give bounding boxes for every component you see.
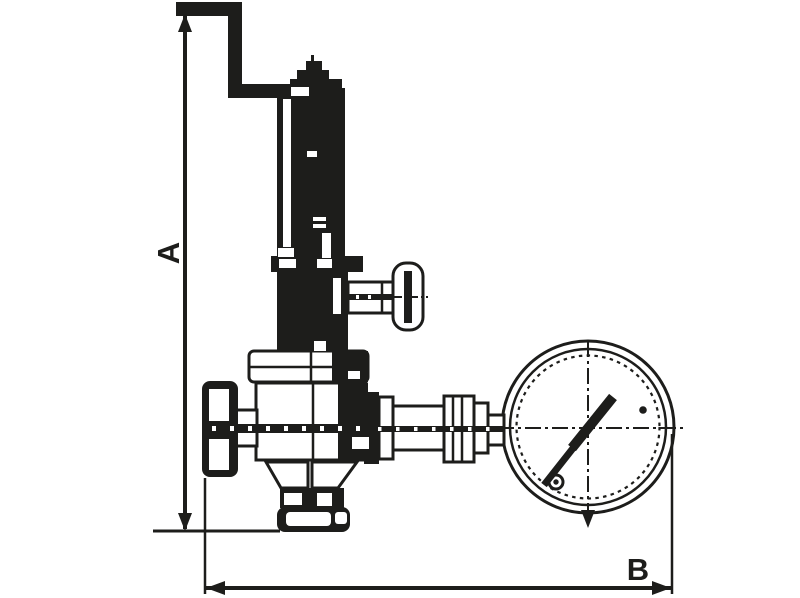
gauge-dial-dot <box>639 406 647 414</box>
gauge-screw-center <box>553 479 558 484</box>
body-taper-left <box>266 462 308 488</box>
side-tap <box>348 263 428 330</box>
gauge-bottom-fitting <box>581 510 595 528</box>
adjusting-pin <box>311 55 314 61</box>
pressure-gauge <box>498 341 684 528</box>
adjusting-nub <box>306 61 322 70</box>
drawing-canvas: A B <box>0 0 800 598</box>
dimension-a-arrow-bottom <box>178 513 192 531</box>
dimension-b-arrow-left <box>206 581 225 595</box>
relief-pipe-path <box>176 9 300 91</box>
dimension-b-arrow-right <box>652 581 671 595</box>
dimension-b-label: B <box>627 552 649 587</box>
relief-pipe <box>176 9 309 96</box>
housing-cap-upper <box>297 70 329 79</box>
body-upper-flange <box>249 351 368 382</box>
dimension-a-label: A <box>151 242 186 264</box>
valve-body <box>256 383 369 532</box>
dimension-a-arrow-top <box>178 14 192 32</box>
body-taper-right <box>312 462 357 488</box>
valve-technical-drawing: A B <box>0 0 800 598</box>
